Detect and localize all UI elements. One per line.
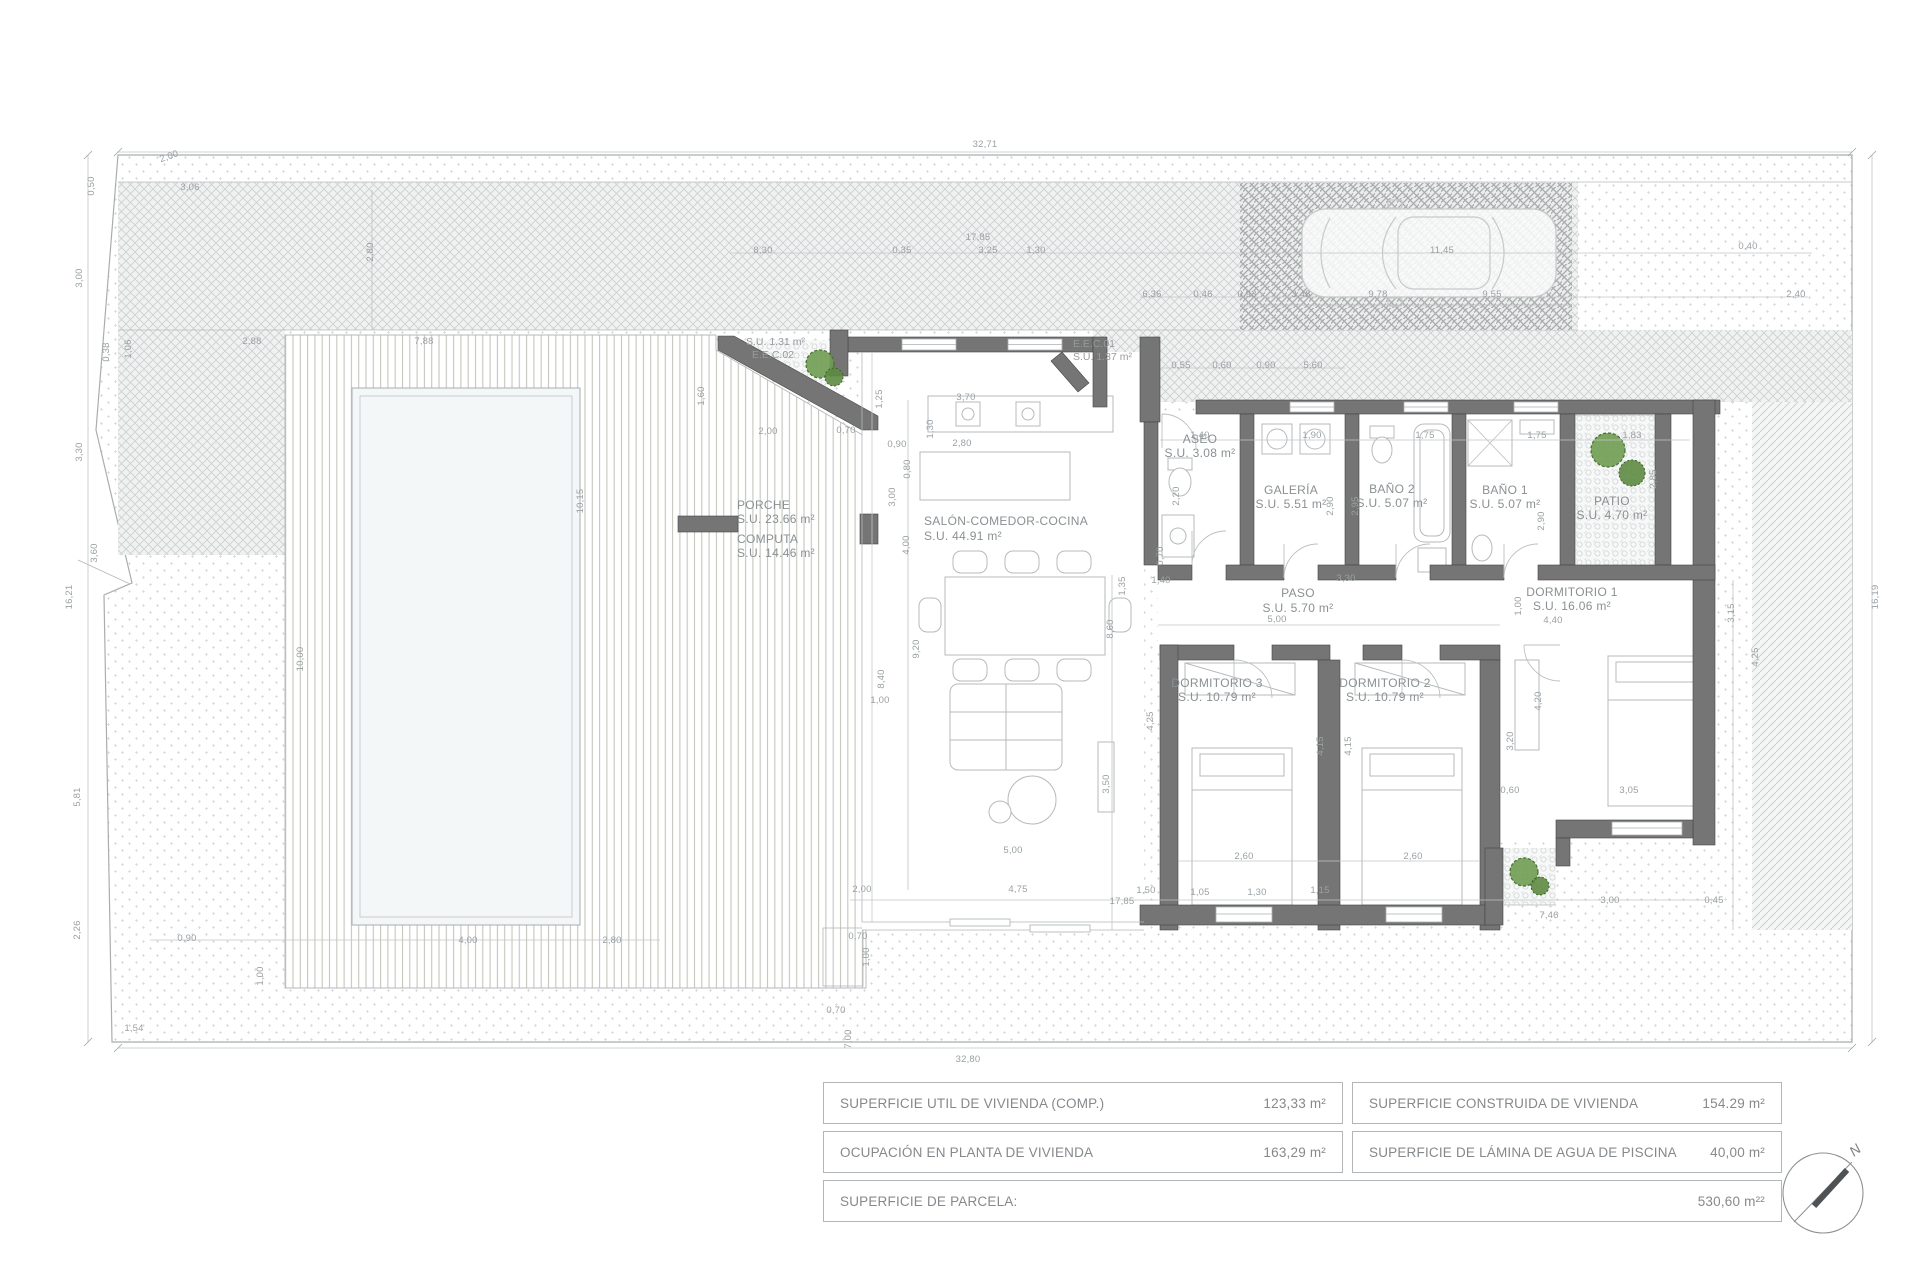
dimension-label: 2,90: [1325, 496, 1336, 515]
dimension-label: 17,85: [966, 232, 991, 243]
floor-plan-sheet: { "rooms": { "porche": {"name": "PORCHE"…: [0, 0, 1920, 1280]
dimension-label: 8,40: [876, 669, 887, 688]
room-area-bano1: S.U. 5.07 m²: [1470, 497, 1541, 511]
dimension-label: 3,00: [74, 268, 85, 287]
dimension-label: 9,20: [911, 639, 922, 658]
summary-label: SUPERFICIE DE PARCELA:: [840, 1194, 1017, 1209]
dimension-label: 1,75: [1527, 430, 1546, 441]
compass: N: [1783, 1140, 1865, 1233]
dimension-label: 0,45: [1704, 895, 1723, 906]
summary-box-piscina: SUPERFICIE DE LÁMINA DE AGUA DE PISCINA …: [1352, 1131, 1782, 1173]
summary-label: SUPERFICIE UTIL DE VIVIENDA (COMP.): [840, 1096, 1104, 1111]
room-label-computa: COMPUTA: [737, 532, 798, 546]
summary-value: 530,60 m²²: [1686, 1194, 1765, 1209]
summary-label: OCUPACIÓN EN PLANTA DE VIVIENDA: [840, 1145, 1093, 1160]
dimension-label: 3,30: [74, 442, 85, 461]
dimension-label: 0,35: [892, 245, 911, 256]
dimension-label: 9,55: [1482, 289, 1501, 300]
side-strip-hatch: [1752, 402, 1852, 930]
compass-needle: [1814, 1170, 1847, 1206]
dimension-label: 3,30: [1336, 573, 1355, 584]
dimension-label: 1,30: [1026, 245, 1045, 256]
dimension-label: 0,70: [826, 1005, 845, 1016]
summary-box-construida: SUPERFICIE CONSTRUIDA DE VIVIENDA 154.29…: [1352, 1082, 1782, 1124]
dimension-label: 5,00: [1003, 845, 1022, 856]
room-area-patio: S.U. 4.70 m²: [1577, 508, 1648, 522]
summary-box-util: SUPERFICIE UTIL DE VIVIENDA (COMP.) 123,…: [823, 1082, 1343, 1124]
dimension-label: 2,26: [72, 920, 83, 939]
dimension-label: 3,50: [1101, 774, 1112, 793]
dimension-label: 11,45: [1430, 245, 1454, 256]
parcel-notch-line: [78, 560, 130, 584]
dimension-label: 5,00: [1267, 614, 1286, 625]
dimension-label: 0,70: [1155, 546, 1166, 565]
dimension-label: 17,85: [1110, 896, 1135, 907]
dimension-label: 1,15: [1310, 885, 1329, 896]
dimension-label: 1,54: [124, 1023, 143, 1034]
dimension-label: 32,71: [973, 139, 998, 150]
dimension-label: 2,80: [952, 438, 971, 449]
room-area-computa: S.U. 14.46 m²: [737, 546, 815, 560]
dimension-label: 0,38: [101, 342, 112, 361]
dimension-label: 1,75: [1415, 430, 1434, 441]
room-area-dorm3: S.U. 10.79 m²: [1178, 690, 1256, 704]
room-label-patio: PATIO: [1594, 494, 1630, 508]
dimension-label: 16,21: [64, 585, 75, 610]
room-label-eec01: E.E.C.01: [1073, 338, 1115, 350]
dimension-label: 0,70: [836, 425, 855, 436]
dimension-label: 2,00: [758, 426, 777, 437]
room-label-paso: PASO: [1281, 586, 1315, 600]
room-label-porche: PORCHE: [737, 498, 790, 512]
dimension-label: 16,19: [1870, 585, 1881, 610]
dimension-label: 0,93: [1237, 289, 1256, 300]
dimension-label: 0,60: [1500, 785, 1519, 796]
dimension-label: 5,60: [1303, 360, 1322, 371]
dimension-label: 1,05: [1190, 887, 1209, 898]
dimension-label: 3,00: [1600, 895, 1619, 906]
dimension-label: 1,40: [1190, 430, 1209, 441]
dimension-label: 0,55: [1171, 360, 1190, 371]
dimension-label: 1,30: [1247, 887, 1266, 898]
dimension-label: 2,95: [1350, 496, 1361, 515]
dimension-label: 0,40: [1738, 241, 1757, 252]
dimension-label: 4,20: [1533, 691, 1544, 710]
kitchen-island: [920, 452, 1070, 500]
room-area-salon: S.U. 44.91 m²: [924, 529, 1002, 543]
paved-band-house-top: [1093, 330, 1852, 402]
dimension-label: 0,50: [86, 176, 97, 195]
dimension-label: 4,25: [1750, 647, 1761, 666]
dimension-label: 3,60: [89, 543, 100, 562]
dimension-label: 2,20: [1171, 486, 1182, 505]
dimension-label: 7,88: [414, 336, 433, 347]
summary-value: 163,29 m²: [1251, 1145, 1326, 1160]
room-area-porche: S.U. 23.66 m²: [737, 512, 815, 526]
dimension-label: 3,48: [1291, 289, 1310, 300]
dimension-label: 1,00: [255, 966, 266, 985]
room-area-eec02: S.U. 1.31 m²: [746, 336, 805, 348]
dimension-label: 3,70: [956, 392, 975, 403]
summary-label: SUPERFICIE CONSTRUIDA DE VIVIENDA: [1369, 1096, 1638, 1111]
dimension-label: 4,00: [901, 535, 912, 554]
porch-pillar: [860, 514, 878, 544]
north-label: N: [1846, 1140, 1865, 1159]
dimension-label: 0,90: [1256, 360, 1275, 371]
dimension-label: 10,00: [295, 647, 306, 672]
dimension-label: 4,15: [1315, 736, 1326, 755]
dimension-label: 2,60: [1234, 851, 1253, 862]
summary-value: 40,00 m²: [1698, 1145, 1765, 1160]
room-label-salon: SALÓN-COMEDOR-COCINA: [924, 513, 1088, 528]
dimension-label: 1,30: [925, 419, 936, 438]
dimension-label: 0,70: [848, 931, 867, 942]
dimension-label: 3,06: [180, 182, 199, 193]
dimension-label: 3,25: [978, 245, 997, 256]
dimension-label: 1,25: [874, 389, 885, 408]
room-label-dorm2: DORMITORIO 2: [1339, 676, 1430, 690]
dimension-label: 2,60: [1403, 851, 1422, 862]
dimension-label: 1,00: [1513, 596, 1524, 615]
dimension-label: 2,85: [1648, 469, 1659, 488]
dimension-label: 0,90: [887, 439, 906, 450]
dimension-label: 5,81: [72, 787, 83, 806]
parking-area: [1240, 183, 1572, 330]
dimension-label: 8,30: [753, 245, 772, 256]
room-label-bano2: BAÑO 2: [1369, 482, 1415, 496]
dimension-label: 3,15: [1726, 603, 1737, 622]
summary-box-parcela: SUPERFICIE DE PARCELA: 530,60 m²²: [823, 1180, 1782, 1222]
summary-box-ocupacion: OCUPACIÓN EN PLANTA DE VIVIENDA 163,29 m…: [823, 1131, 1343, 1173]
summary-label: SUPERFICIE DE LÁMINA DE AGUA DE PISCINA: [1369, 1145, 1677, 1160]
dimension-label: 0,80: [902, 459, 913, 478]
dimension-label: 1,83: [1622, 430, 1641, 441]
dimension-label: 2,80: [602, 935, 621, 946]
dimension-label: 2,00: [852, 884, 871, 895]
dimension-label: 7,00: [843, 1029, 854, 1048]
dimension-label: 1,90: [1302, 430, 1321, 441]
room-label-bano1: BAÑO 1: [1482, 483, 1528, 497]
summary-value: 154.29 m²: [1690, 1096, 1765, 1111]
room-area-aseo: S.U. 3.08 m²: [1165, 446, 1236, 460]
dimension-label: 10,15: [575, 489, 586, 514]
coffee-table: [1008, 776, 1056, 824]
room-label-eec02: E.E.C.02: [752, 349, 794, 361]
dimension-label: 0,90: [177, 933, 196, 944]
dimension-label: 1,35: [1117, 576, 1128, 595]
dimension-label: 1,00: [870, 695, 889, 706]
dimension-label: 1,06: [123, 339, 134, 358]
room-label-galeria: GALERÍA: [1264, 482, 1318, 497]
dimension-label: 9,78: [1368, 289, 1387, 300]
summary-value: 123,33 m²: [1251, 1096, 1326, 1111]
porch-pillar-wall: [678, 516, 738, 532]
room-label-dorm1: DORMITORIO 1: [1526, 585, 1617, 599]
dimension-label: 4,75: [1008, 884, 1027, 895]
dimension-label: 3,00: [887, 487, 898, 506]
dimension-label: 4,15: [1343, 736, 1354, 755]
dimension-label: 2,80: [365, 242, 376, 261]
dimension-label: 2,88: [242, 336, 261, 347]
dimension-label: 4,40: [1543, 615, 1562, 626]
dimension-label: 2,90: [1536, 511, 1547, 530]
dimension-label: 4,00: [458, 935, 477, 946]
room-area-galeria: S.U. 5.51 m²: [1256, 497, 1327, 511]
dimension-label: 0,60: [1212, 360, 1231, 371]
dimension-label: 3,20: [1505, 731, 1516, 750]
dimension-label: 1,00: [861, 947, 872, 966]
dimension-label: 1,40: [1151, 575, 1170, 586]
dimension-label: 7,46: [1539, 910, 1558, 921]
room-area-dorm1: S.U. 16.06 m²: [1533, 599, 1611, 613]
dimension-label: 6,36: [1142, 289, 1161, 300]
room-area-paso: S.U. 5.70 m²: [1263, 601, 1334, 615]
dimension-label: 4,25: [1145, 711, 1156, 730]
room-label-dorm3: DORMITORIO 3: [1171, 676, 1262, 690]
room-area-dorm2: S.U. 10.79 m²: [1346, 690, 1424, 704]
dimension-label: 3,05: [1619, 785, 1638, 796]
dimension-label: 8,60: [1105, 619, 1116, 638]
pool: [352, 388, 580, 925]
dimension-label: 32,80: [956, 1054, 981, 1065]
room-area-bano2: S.U. 5.07 m²: [1357, 496, 1428, 510]
dimension-label: 1,50: [1136, 885, 1155, 896]
dimension-label: 0,46: [1193, 289, 1212, 300]
dimension-label: 2,40: [1786, 289, 1805, 300]
room-area-eec01: S.U. 1.37 m²: [1073, 351, 1132, 363]
dimension-label: 1,60: [696, 386, 707, 405]
